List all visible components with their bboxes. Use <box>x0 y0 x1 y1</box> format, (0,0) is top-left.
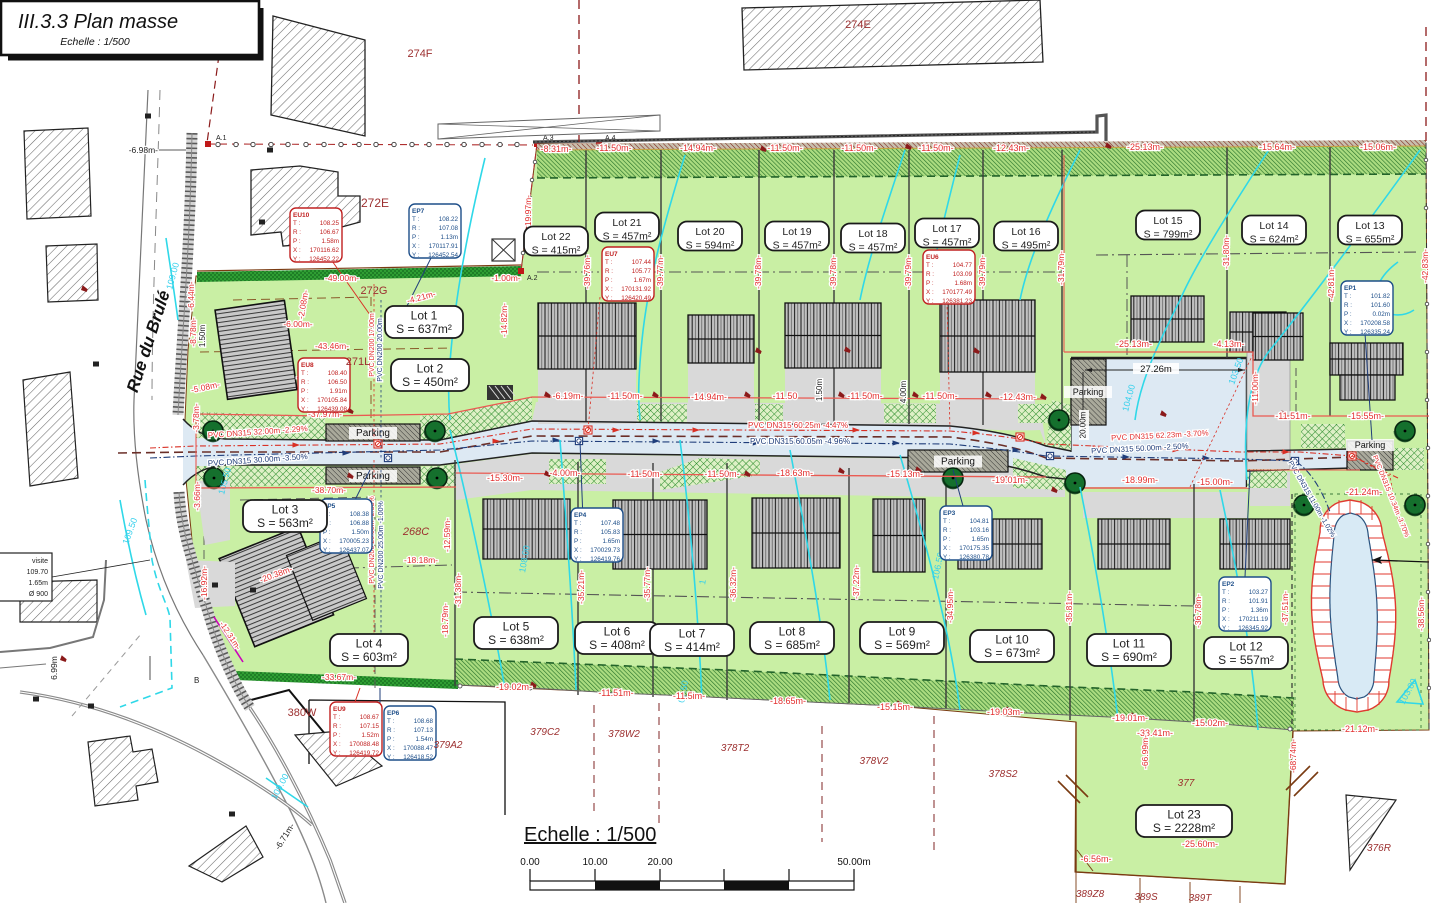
svg-text:126381.23: 126381.23 <box>942 298 972 305</box>
svg-text:P :: P : <box>387 736 395 743</box>
svg-text:R :: R : <box>387 727 395 734</box>
svg-text:-3.66m-: -3.66m- <box>192 481 202 510</box>
svg-text:272E: 272E <box>361 196 389 210</box>
svg-text:-19.02m-: -19.02m- <box>496 682 532 692</box>
svg-text:1.36m: 1.36m <box>1250 607 1268 614</box>
svg-text:Y :: Y : <box>605 295 613 302</box>
svg-text:170005.23: 170005.23 <box>339 538 369 545</box>
svg-text:-35.81m-: -35.81m- <box>1064 591 1074 625</box>
svg-text:S = 414m²: S = 414m² <box>664 640 720 654</box>
svg-text:S = 457m²: S = 457m² <box>849 242 898 254</box>
svg-text:377: 377 <box>1178 778 1195 789</box>
svg-text:107.08: 107.08 <box>439 225 459 232</box>
svg-text:-15.30m-: -15.30m- <box>487 473 523 483</box>
svg-text:-14.94m-: -14.94m- <box>691 392 727 402</box>
svg-text:-39.77m-: -39.77m- <box>655 255 665 289</box>
svg-text:-11.50: -11.50 <box>773 391 798 401</box>
svg-text:379A2: 379A2 <box>434 740 463 751</box>
svg-text:Lot 18: Lot 18 <box>858 228 887 240</box>
svg-text:Lot 1: Lot 1 <box>411 309 438 323</box>
svg-text:108.25: 108.25 <box>320 220 340 227</box>
svg-text:Lot 23: Lot 23 <box>1167 808 1201 822</box>
svg-text:Parking: Parking <box>1073 387 1104 397</box>
svg-text:-6.00m-: -6.00m- <box>283 319 312 329</box>
svg-text:170175.35: 170175.35 <box>959 545 989 552</box>
svg-text:A.2: A.2 <box>527 275 538 282</box>
svg-text:S = 655m²: S = 655m² <box>1346 234 1395 246</box>
svg-text:103.27: 103.27 <box>1249 589 1269 596</box>
svg-text:X :: X : <box>605 286 613 293</box>
svg-text:-18.18m-: -18.18m- <box>404 555 438 565</box>
svg-text:170117.91: 170117.91 <box>429 243 459 250</box>
svg-text:Lot 16: Lot 16 <box>1011 226 1040 238</box>
svg-text:27.26m: 27.26m <box>1140 364 1172 375</box>
svg-text:389Z8: 389Z8 <box>1076 889 1105 900</box>
svg-text:EP4: EP4 <box>574 512 587 519</box>
svg-text:Y :: Y : <box>293 256 301 263</box>
svg-text:1.67m: 1.67m <box>633 277 651 284</box>
svg-text:S = 2228m²: S = 2228m² <box>1153 821 1215 835</box>
svg-text:S = 457m²: S = 457m² <box>603 231 652 243</box>
svg-text:-8.31m-: -8.31m- <box>540 144 571 154</box>
svg-text:S = 557m²: S = 557m² <box>1218 653 1274 667</box>
svg-text:T :: T : <box>574 520 581 527</box>
svg-text:Lot 20: Lot 20 <box>695 226 724 238</box>
svg-text:-21.24m-: -21.24m- <box>1346 487 1382 497</box>
svg-text:R :: R : <box>605 268 613 275</box>
svg-text:X :: X : <box>943 545 951 552</box>
svg-text:-12.59m-: -12.59m- <box>442 518 452 552</box>
svg-text:-39.79m-: -39.79m- <box>977 255 987 289</box>
svg-text:S = 495m²: S = 495m² <box>1002 240 1051 252</box>
svg-text:108.38: 108.38 <box>350 511 370 518</box>
svg-text:-66.99m-: -66.99m- <box>1140 735 1150 769</box>
svg-text:106.67: 106.67 <box>320 229 340 236</box>
svg-text:-14.82m-: -14.82m- <box>499 303 509 337</box>
svg-text:389S: 389S <box>1134 892 1158 903</box>
svg-text:-4.00m-: -4.00m- <box>549 468 580 478</box>
svg-text:-4.13m-: -4.13m- <box>1213 339 1244 349</box>
svg-text:S = 603m²: S = 603m² <box>341 650 397 664</box>
svg-text:S = 408m²: S = 408m² <box>589 638 645 652</box>
svg-text:EU8: EU8 <box>301 362 314 369</box>
svg-text:274F: 274F <box>407 48 432 60</box>
svg-text:EP1: EP1 <box>1344 285 1357 292</box>
svg-text:-18.99m-: -18.99m- <box>1122 475 1158 485</box>
svg-text:1.50m: 1.50m <box>198 325 207 348</box>
svg-text:126380.78: 126380.78 <box>959 554 989 561</box>
svg-text:X :: X : <box>574 547 582 554</box>
svg-text:S = 638m²: S = 638m² <box>488 633 544 647</box>
svg-text:Echelle : 1/500: Echelle : 1/500 <box>524 824 656 846</box>
svg-text:378S2: 378S2 <box>989 769 1018 780</box>
svg-text:Parking: Parking <box>941 457 975 468</box>
svg-text:P :: P : <box>412 234 420 241</box>
svg-text:Lot 17: Lot 17 <box>932 223 961 235</box>
svg-text:S = 457m²: S = 457m² <box>923 237 972 249</box>
svg-text:Lot 5: Lot 5 <box>503 620 530 634</box>
svg-text:389T: 389T <box>1189 893 1213 903</box>
svg-text:Lot 22: Lot 22 <box>541 231 570 243</box>
svg-text:-34.95m-: -34.95m- <box>945 589 955 623</box>
svg-text:Y :: Y : <box>333 750 341 757</box>
svg-text:-6.98m-: -6.98m- <box>129 145 158 155</box>
svg-text:-49.00m-: -49.00m- <box>325 273 359 283</box>
svg-text:-15.55m-: -15.55m- <box>1348 411 1384 421</box>
svg-text:X :: X : <box>387 745 395 752</box>
svg-text:107.44: 107.44 <box>632 259 652 266</box>
svg-text:-36.32m-: -36.32m- <box>728 567 738 601</box>
svg-text:108.22: 108.22 <box>439 216 459 223</box>
svg-text:103.09: 103.09 <box>953 271 973 278</box>
svg-text:170211.19: 170211.19 <box>1239 616 1269 623</box>
svg-text:170105.84: 170105.84 <box>317 397 347 404</box>
svg-text:126345.92: 126345.92 <box>1238 625 1268 632</box>
svg-text:126335.24: 126335.24 <box>1360 329 1390 336</box>
svg-text:P :: P : <box>293 238 301 245</box>
svg-text:Y :: Y : <box>323 547 331 554</box>
svg-text:-3.78m-: -3.78m- <box>191 403 201 432</box>
svg-text:104.77: 104.77 <box>953 262 973 269</box>
svg-text:101.60: 101.60 <box>1371 302 1391 309</box>
svg-text:-18.65m-: -18.65m- <box>770 696 806 706</box>
svg-text:380W: 380W <box>288 707 317 719</box>
svg-text:Lot 2: Lot 2 <box>417 362 444 376</box>
svg-text:-39.78m-: -39.78m- <box>753 255 763 289</box>
svg-text:A.1: A.1 <box>216 135 227 142</box>
svg-text:T :: T : <box>1344 293 1351 300</box>
svg-text:-11.50m-: -11.50m- <box>627 469 662 479</box>
svg-text:-37.51m-: -37.51m- <box>1280 591 1290 625</box>
svg-text:-43.46m-: -43.46m- <box>315 341 349 351</box>
svg-text:-36.78m-: -36.78m- <box>1193 594 1203 628</box>
svg-text:X :: X : <box>293 247 301 254</box>
svg-text:X :: X : <box>926 289 934 296</box>
svg-text:T :: T : <box>926 262 933 269</box>
svg-text:103.16: 103.16 <box>970 527 990 534</box>
svg-text:R :: R : <box>333 723 341 730</box>
svg-text:R :: R : <box>301 379 309 386</box>
svg-text:105.77: 105.77 <box>632 268 652 275</box>
svg-text:1.54m: 1.54m <box>415 736 433 743</box>
svg-text:-35.21m-: -35.21m- <box>576 570 586 604</box>
svg-text:Echelle : 1/500: Echelle : 1/500 <box>60 36 130 48</box>
svg-text:268C: 268C <box>402 526 429 538</box>
svg-text:Lot 11: Lot 11 <box>1113 637 1146 651</box>
svg-text:-21.12m-: -21.12m- <box>1342 724 1378 734</box>
svg-text:101.82: 101.82 <box>1371 293 1391 300</box>
svg-text:Parking: Parking <box>1355 440 1386 450</box>
svg-text:-15.02m-: -15.02m- <box>1192 718 1228 728</box>
svg-text:108.67: 108.67 <box>360 714 380 721</box>
svg-text:-38.70m-: -38.70m- <box>312 485 346 495</box>
svg-text:-18.63m-: -18.63m- <box>777 468 813 478</box>
svg-text:-19.97m-: -19.97m- <box>523 195 533 229</box>
svg-text:-42.81m-: -42.81m- <box>1326 267 1336 301</box>
svg-text:B: B <box>194 676 199 685</box>
svg-text:R :: R : <box>926 271 934 278</box>
svg-text:-8.78m-: -8.78m- <box>188 317 198 346</box>
svg-text:X :: X : <box>333 741 341 748</box>
svg-text:X :: X : <box>412 243 420 250</box>
svg-text:-11.5im-: -11.5im- <box>673 691 705 701</box>
svg-text:S = 594m²: S = 594m² <box>686 240 735 252</box>
svg-text:S = 690m²: S = 690m² <box>1101 650 1157 664</box>
svg-text:R :: R : <box>574 529 582 536</box>
svg-text:107.15: 107.15 <box>360 723 380 730</box>
svg-text:4.00m: 4.00m <box>899 381 908 404</box>
svg-text:-31.79m-: -31.79m- <box>1056 251 1066 285</box>
svg-text:-11.50m-: -11.50m- <box>704 469 739 479</box>
svg-text:P :: P : <box>926 280 934 287</box>
svg-text:-31.38m-: -31.38m- <box>453 573 463 607</box>
svg-text:EP3: EP3 <box>943 510 956 517</box>
svg-text:PVC DN315 60.05m -4.96%: PVC DN315 60.05m -4.96% <box>750 437 850 446</box>
svg-text:T :: T : <box>293 220 300 227</box>
svg-text:170088.48: 170088.48 <box>349 741 379 748</box>
svg-text:-16.92m-: -16.92m- <box>199 566 209 600</box>
svg-text:Y :: Y : <box>301 406 309 413</box>
svg-text:T :: T : <box>333 714 340 721</box>
svg-text:378V2: 378V2 <box>860 756 889 767</box>
svg-text:-39.79m-: -39.79m- <box>903 255 913 289</box>
svg-text:170177.49: 170177.49 <box>942 289 972 296</box>
svg-text:1.65m: 1.65m <box>602 538 620 545</box>
svg-text:1.58m: 1.58m <box>321 238 339 245</box>
svg-text:-38.56m-: -38.56m- <box>1416 597 1426 631</box>
svg-text:PVC DN315 60.25m -4.47%: PVC DN315 60.25m -4.47% <box>748 421 848 430</box>
svg-text:-15.15m-: -15.15m- <box>877 702 913 712</box>
svg-text:S = 685m²: S = 685m² <box>764 638 820 652</box>
svg-text:126439.08: 126439.08 <box>317 406 347 413</box>
svg-text:T :: T : <box>387 718 394 725</box>
svg-text:P :: P : <box>574 538 582 545</box>
svg-text:170131.92: 170131.92 <box>621 286 651 293</box>
svg-text:S = 624m²: S = 624m² <box>1250 234 1299 246</box>
svg-text:1.50m: 1.50m <box>351 529 369 536</box>
svg-text:-11.51m-: -11.51m- <box>598 688 633 698</box>
svg-text:-19.01m-: -19.01m- <box>992 475 1028 485</box>
svg-text:-14.94m-: -14.94m- <box>680 143 716 153</box>
svg-text:0.00: 0.00 <box>520 857 540 868</box>
svg-text:108.40: 108.40 <box>328 370 348 377</box>
svg-text:Lot 19: Lot 19 <box>782 226 811 238</box>
svg-text:T :: T : <box>943 518 950 525</box>
svg-text:170029.73: 170029.73 <box>590 547 620 554</box>
svg-text:P :: P : <box>1222 607 1230 614</box>
svg-text:-12.43m-: -12.43m- <box>993 143 1029 153</box>
svg-text:S = 450m²: S = 450m² <box>402 375 458 389</box>
svg-text:T :: T : <box>412 216 419 223</box>
svg-text:126420.49: 126420.49 <box>621 295 651 302</box>
svg-text:P :: P : <box>333 732 341 739</box>
svg-text:10.00: 10.00 <box>582 857 607 868</box>
svg-text:X :: X : <box>1344 320 1352 327</box>
svg-text:EP7: EP7 <box>412 208 425 215</box>
svg-text:S = 563m²: S = 563m² <box>257 516 313 530</box>
svg-text:Y :: Y : <box>1222 625 1230 632</box>
svg-text:105.83: 105.83 <box>601 529 621 536</box>
svg-text:P :: P : <box>943 536 951 543</box>
svg-text:-68.74m-: -68.74m- <box>1288 739 1298 773</box>
svg-text:Y :: Y : <box>387 754 395 761</box>
svg-text:-11.50m-: -11.50m- <box>607 391 642 401</box>
svg-text:PVC DN200 25.00m -1.00%: PVC DN200 25.00m -1.00% <box>378 501 385 589</box>
svg-text:R :: R : <box>1344 302 1352 309</box>
svg-text:Ø 900: Ø 900 <box>29 591 48 598</box>
svg-text:EU10: EU10 <box>293 212 310 219</box>
svg-text:20.00m: 20.00m <box>1079 411 1088 438</box>
svg-text:-31.80m-: -31.80m- <box>1221 235 1231 269</box>
svg-text:T :: T : <box>1222 589 1229 596</box>
svg-text:126437.07: 126437.07 <box>339 547 369 554</box>
svg-text:376R: 376R <box>1367 843 1391 854</box>
svg-text:S = 637m²: S = 637m² <box>396 322 452 336</box>
svg-text:107.48: 107.48 <box>601 520 621 527</box>
svg-text:1.65m: 1.65m <box>29 580 49 587</box>
svg-text:378W2: 378W2 <box>608 729 640 740</box>
svg-text:-39.78m-: -39.78m- <box>828 255 838 289</box>
svg-text:-19.01m-: -19.01m- <box>1112 713 1148 723</box>
svg-text:R :: R : <box>943 527 951 534</box>
svg-text:Lot 15: Lot 15 <box>1153 215 1182 227</box>
svg-text:378T2: 378T2 <box>721 743 750 754</box>
svg-text:EU9: EU9 <box>333 706 346 713</box>
svg-text:-11.50m-: -11.50m- <box>596 143 631 153</box>
svg-text:109.70: 109.70 <box>27 569 49 576</box>
svg-text:1.50m: 1.50m <box>815 379 824 402</box>
svg-text:170208.58: 170208.58 <box>1360 320 1390 327</box>
svg-text:-6.19m-: -6.19m- <box>552 391 583 401</box>
svg-text:P :: P : <box>301 388 309 395</box>
svg-text:S = 569m²: S = 569m² <box>874 638 930 652</box>
svg-text:0.02m: 0.02m <box>1372 311 1390 318</box>
svg-text:6.99m: 6.99m <box>49 656 59 680</box>
svg-text:Lot 13: Lot 13 <box>1355 220 1384 232</box>
svg-text:X :: X : <box>1222 616 1230 623</box>
svg-text:Lot 14: Lot 14 <box>1259 220 1288 232</box>
svg-text:S = 415m²: S = 415m² <box>532 245 581 257</box>
svg-text:-12.43m-: -12.43m- <box>1000 392 1036 402</box>
svg-text:Parking: Parking <box>356 471 390 482</box>
svg-text:S = 457m²: S = 457m² <box>773 240 822 252</box>
svg-text:104.81: 104.81 <box>970 518 990 525</box>
svg-text:Y :: Y : <box>574 556 582 563</box>
svg-text:-15.64m-: -15.64m- <box>1259 142 1295 152</box>
svg-text:Y :: Y : <box>943 554 951 561</box>
svg-text:101.91: 101.91 <box>1249 598 1269 605</box>
svg-text:P :: P : <box>1344 311 1352 318</box>
svg-text:107.13: 107.13 <box>414 727 434 734</box>
svg-text:-11.50m-: -11.50m- <box>922 391 957 401</box>
svg-text:108.68: 108.68 <box>414 718 434 725</box>
svg-text:-39.76m-: -39.76m- <box>582 255 592 289</box>
svg-text:1.52m: 1.52m <box>361 732 379 739</box>
svg-text:-11.50m-: -11.50m- <box>918 143 953 153</box>
svg-text:III.3.3 Plan masse: III.3.3 Plan masse <box>18 11 178 33</box>
svg-text:Lot 8: Lot 8 <box>779 625 806 639</box>
svg-text:Lot 12: Lot 12 <box>1229 640 1263 654</box>
svg-text:-11.50m-: -11.50m- <box>847 391 882 401</box>
svg-text:1.91m: 1.91m <box>329 388 347 395</box>
svg-text:274E: 274E <box>845 19 871 31</box>
svg-text:1.13m: 1.13m <box>440 234 458 241</box>
svg-text:X :: X : <box>301 397 309 404</box>
svg-text:R :: R : <box>293 229 301 236</box>
svg-text:-15.00m-: -15.00m- <box>1197 477 1233 487</box>
svg-text:-33.67m-: -33.67m- <box>322 672 356 682</box>
svg-text:P :: P : <box>605 277 613 284</box>
svg-text:-42.83m-: -42.83m- <box>1420 249 1430 283</box>
svg-text:170088.47: 170088.47 <box>403 745 433 752</box>
svg-text:T :: T : <box>605 259 612 266</box>
svg-text:-6.44m-: -6.44m- <box>186 281 196 310</box>
svg-text:-25.13m-: -25.13m- <box>1127 142 1163 152</box>
svg-text:EU7: EU7 <box>605 251 618 258</box>
svg-text:126452.54: 126452.54 <box>428 252 458 259</box>
svg-text:-6.56m-: -6.56m- <box>1080 854 1111 864</box>
svg-text:-37.22m-: -37.22m- <box>851 565 861 599</box>
svg-text:EP2: EP2 <box>1222 581 1235 588</box>
svg-text:Lot 4: Lot 4 <box>356 637 383 651</box>
svg-text:-25.13m-: -25.13m- <box>1116 339 1152 349</box>
svg-text:Y :: Y : <box>926 298 934 305</box>
svg-text:Y :: Y : <box>1344 329 1352 336</box>
svg-text:S = 799m²: S = 799m² <box>1144 229 1193 241</box>
svg-text:EP6: EP6 <box>387 710 400 717</box>
svg-text:X :: X : <box>323 538 331 545</box>
svg-text:PVC DN200 20.00m: PVC DN200 20.00m <box>377 318 384 382</box>
svg-text:271L: 271L <box>346 356 370 368</box>
svg-text:106.88: 106.88 <box>350 520 370 527</box>
svg-text:EU6: EU6 <box>926 254 939 261</box>
svg-text:R :: R : <box>412 225 420 232</box>
svg-text:Lot 3: Lot 3 <box>272 503 299 517</box>
svg-text:170116.62: 170116.62 <box>310 247 340 254</box>
svg-text:1.65m: 1.65m <box>971 536 989 543</box>
svg-text:Y :: Y : <box>412 252 420 259</box>
svg-text:272G: 272G <box>361 285 388 297</box>
svg-text:126452.22: 126452.22 <box>309 256 339 263</box>
svg-text:-18.79m-: -18.79m- <box>440 603 450 637</box>
svg-text:379C2: 379C2 <box>530 727 560 738</box>
svg-text:-35.77m-: -35.77m- <box>642 567 652 601</box>
svg-text:visite: visite <box>32 558 48 565</box>
svg-text:1.68m: 1.68m <box>954 280 972 287</box>
svg-text:-11.50m-: -11.50m- <box>767 143 802 153</box>
svg-text:T :: T : <box>301 370 308 377</box>
svg-text:R :: R : <box>1222 598 1230 605</box>
svg-text:126419.76: 126419.76 <box>590 556 620 563</box>
svg-text:126419.72: 126419.72 <box>349 750 379 757</box>
svg-text:-11.50m-: -11.50m- <box>841 143 876 153</box>
svg-text:50.00m: 50.00m <box>837 857 870 868</box>
svg-text:126418.52: 126418.52 <box>403 754 433 761</box>
svg-text:-15.06m-: -15.06m- <box>1360 142 1396 152</box>
svg-text:Lot 9: Lot 9 <box>889 625 916 639</box>
svg-text:-11.00m-: -11.00m- <box>1250 371 1260 405</box>
svg-text:S = 673m²: S = 673m² <box>984 646 1040 660</box>
svg-text:-1.00m-: -1.00m- <box>491 273 520 283</box>
svg-text:-25.60m-: -25.60m- <box>1182 839 1218 849</box>
svg-text:20.00: 20.00 <box>647 857 672 868</box>
svg-text:Lot 10: Lot 10 <box>995 633 1029 647</box>
svg-text:-11.51m-: -11.51m- <box>1275 411 1310 421</box>
svg-text:Lot 21: Lot 21 <box>612 217 641 229</box>
svg-text:-19.03m-: -19.03m- <box>987 707 1023 717</box>
svg-text:Lot 6: Lot 6 <box>604 625 631 639</box>
svg-text:Parking: Parking <box>356 428 390 439</box>
